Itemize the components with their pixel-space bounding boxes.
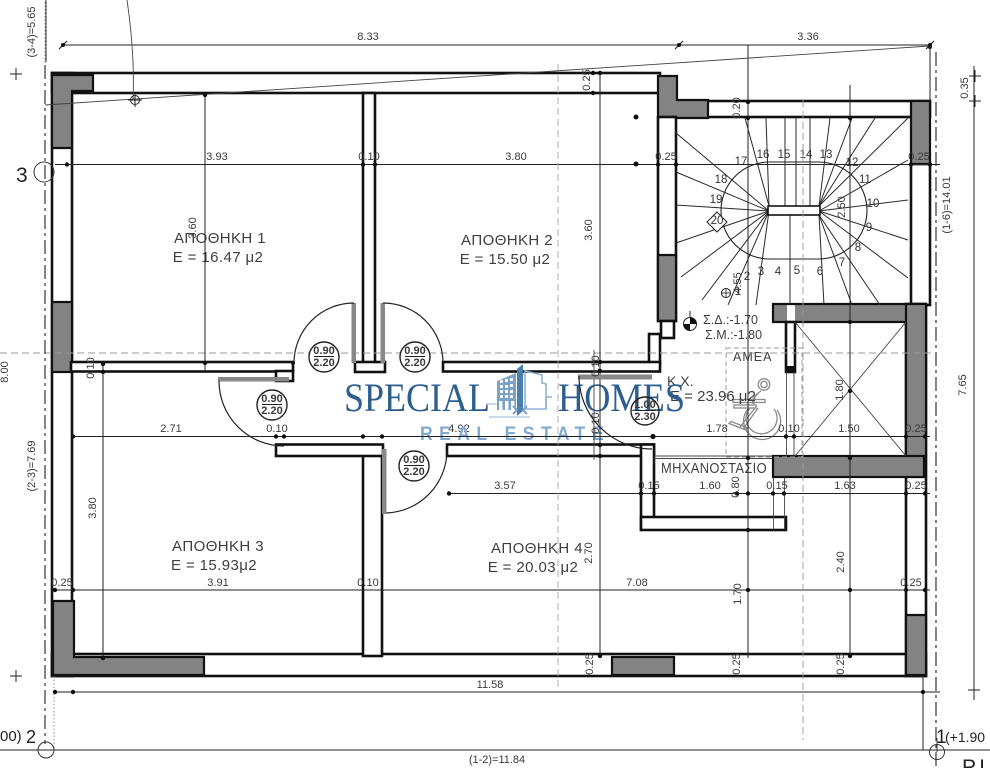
svg-text:19: 19 (710, 194, 723, 206)
svg-text:14: 14 (800, 149, 813, 161)
svg-text:3.36: 3.36 (797, 31, 818, 43)
svg-text:ΑΜΕΑ: ΑΜΕΑ (733, 350, 772, 364)
svg-text:11: 11 (859, 174, 871, 186)
svg-text:0.10: 0.10 (590, 355, 602, 376)
svg-text:2.50: 2.50 (836, 196, 848, 217)
svg-text:5: 5 (794, 265, 800, 277)
svg-text:2.20: 2.20 (313, 357, 334, 369)
svg-text:0.10: 0.10 (266, 423, 287, 435)
svg-text:0.10: 0.10 (590, 412, 602, 433)
svg-text:1.50: 1.50 (838, 423, 859, 435)
svg-text:0.90: 0.90 (313, 345, 334, 357)
svg-text:3.57: 3.57 (494, 480, 515, 492)
svg-text:1.70: 1.70 (732, 583, 744, 604)
svg-text:3.60: 3.60 (583, 219, 595, 240)
svg-text:ΑΠΟΘΗΚΗ 2: ΑΠΟΘΗΚΗ 2 (461, 232, 553, 249)
svg-text:0.90: 0.90 (403, 454, 424, 466)
svg-text:0.15: 0.15 (766, 480, 787, 492)
svg-text:Σ.Μ.:-1.80: Σ.Μ.:-1.80 (705, 328, 762, 342)
svg-text:2: 2 (26, 727, 36, 747)
svg-text:ΑΠΟΘΗΚΗ 3: ΑΠΟΘΗΚΗ 3 (172, 538, 264, 555)
svg-text:1.78: 1.78 (706, 423, 727, 435)
svg-text:8: 8 (855, 242, 861, 254)
svg-text:4: 4 (775, 266, 782, 278)
svg-text:17: 17 (735, 156, 748, 168)
svg-text:2: 2 (744, 271, 750, 283)
svg-text:(+1.90: (+1.90 (945, 729, 985, 745)
svg-text:ΜΗΧΑΝΟΣΤΑΣΙΟ: ΜΗΧΑΝΟΣΤΑΣΙΟ (661, 460, 767, 477)
svg-text:10: 10 (867, 198, 880, 210)
svg-text:0.25: 0.25 (51, 577, 72, 589)
svg-text:3: 3 (16, 164, 28, 187)
svg-text:3: 3 (758, 266, 764, 278)
svg-text:00): 00) (0, 728, 22, 745)
svg-text:20: 20 (711, 215, 724, 227)
svg-text:0.90: 0.90 (404, 345, 425, 357)
svg-text:11.58: 11.58 (477, 679, 504, 691)
svg-text:2.20: 2.20 (261, 405, 282, 417)
svg-text:0.35: 0.35 (959, 77, 971, 98)
svg-text:0.25: 0.25 (731, 653, 743, 674)
svg-text:3.60: 3.60 (187, 217, 199, 238)
svg-text:P.I: P.I (962, 756, 985, 768)
svg-text:2.30: 2.30 (634, 411, 655, 423)
svg-text:0.25: 0.25 (835, 653, 847, 674)
svg-text:0.25: 0.25 (655, 151, 676, 163)
svg-text:0.20: 0.20 (731, 97, 743, 118)
svg-text:(1-2)=11.84: (1-2)=11.84 (469, 754, 525, 766)
svg-text:0.25: 0.25 (905, 423, 926, 435)
svg-text:(3-4)=5.65: (3-4)=5.65 (26, 6, 38, 57)
svg-text:0.25: 0.25 (584, 653, 596, 674)
svg-text:1.63: 1.63 (834, 480, 855, 492)
svg-text:8.00: 8.00 (0, 361, 11, 382)
svg-text:2.20: 2.20 (404, 357, 425, 369)
svg-text:0.90: 0.90 (261, 393, 282, 405)
svg-text:3.80: 3.80 (87, 497, 99, 518)
svg-text:ΑΠΟΘΗΚΗ 4: ΑΠΟΘΗΚΗ 4 (491, 540, 583, 557)
svg-text:0.25: 0.25 (905, 480, 926, 492)
svg-text:Ε = 20.03 μ2: Ε = 20.03 μ2 (488, 559, 579, 576)
svg-text:0.25: 0.25 (900, 577, 921, 589)
svg-text:15: 15 (778, 149, 791, 161)
svg-text:Ε = 15.93μ2: Ε = 15.93μ2 (171, 557, 257, 574)
svg-text:16: 16 (757, 149, 770, 161)
svg-text:0.10: 0.10 (358, 151, 379, 163)
svg-text:2.20: 2.20 (403, 466, 424, 478)
svg-text:3.80: 3.80 (505, 151, 526, 163)
svg-text:2.40: 2.40 (835, 551, 847, 572)
svg-text:2.71: 2.71 (160, 423, 181, 435)
svg-text:0.10: 0.10 (85, 357, 97, 378)
svg-text:HOMES: HOMES (558, 375, 685, 420)
svg-text:7.08: 7.08 (626, 577, 647, 589)
svg-text:1.60: 1.60 (699, 480, 720, 492)
svg-text:Ε = 16.47 μ2: Ε = 16.47 μ2 (173, 249, 264, 266)
svg-text:3.93: 3.93 (206, 151, 227, 163)
svg-text:REAL ESTATE: REAL ESTATE (420, 424, 610, 445)
svg-text:9: 9 (866, 222, 872, 234)
svg-text:0.15: 0.15 (638, 480, 659, 492)
svg-text:Σ.Δ.:-1.70: Σ.Δ.:-1.70 (703, 313, 758, 327)
svg-text:8.33: 8.33 (357, 31, 378, 43)
svg-text:7: 7 (839, 257, 845, 269)
svg-text:18: 18 (715, 174, 728, 186)
svg-text:(1-6)=14.01: (1-6)=14.01 (941, 176, 953, 233)
svg-text:1.00: 1.00 (634, 399, 655, 411)
svg-text:0.10: 0.10 (357, 577, 378, 589)
svg-text:SPECIAL: SPECIAL (344, 375, 490, 420)
svg-text:0.10: 0.10 (778, 423, 799, 435)
svg-text:4.55: 4.55 (732, 272, 744, 293)
svg-text:6: 6 (817, 266, 823, 278)
svg-text:1.80: 1.80 (834, 379, 846, 400)
svg-text:(2-3)=7.69: (2-3)=7.69 (26, 440, 38, 491)
svg-text:12: 12 (846, 157, 859, 169)
svg-text:3.91: 3.91 (207, 577, 228, 589)
svg-text:2.70: 2.70 (583, 542, 595, 563)
svg-text:13: 13 (820, 149, 833, 161)
svg-text:7.65: 7.65 (957, 374, 969, 395)
svg-text:Ε = 15.50 μ2: Ε = 15.50 μ2 (460, 251, 551, 268)
svg-text:0.25: 0.25 (908, 151, 929, 163)
